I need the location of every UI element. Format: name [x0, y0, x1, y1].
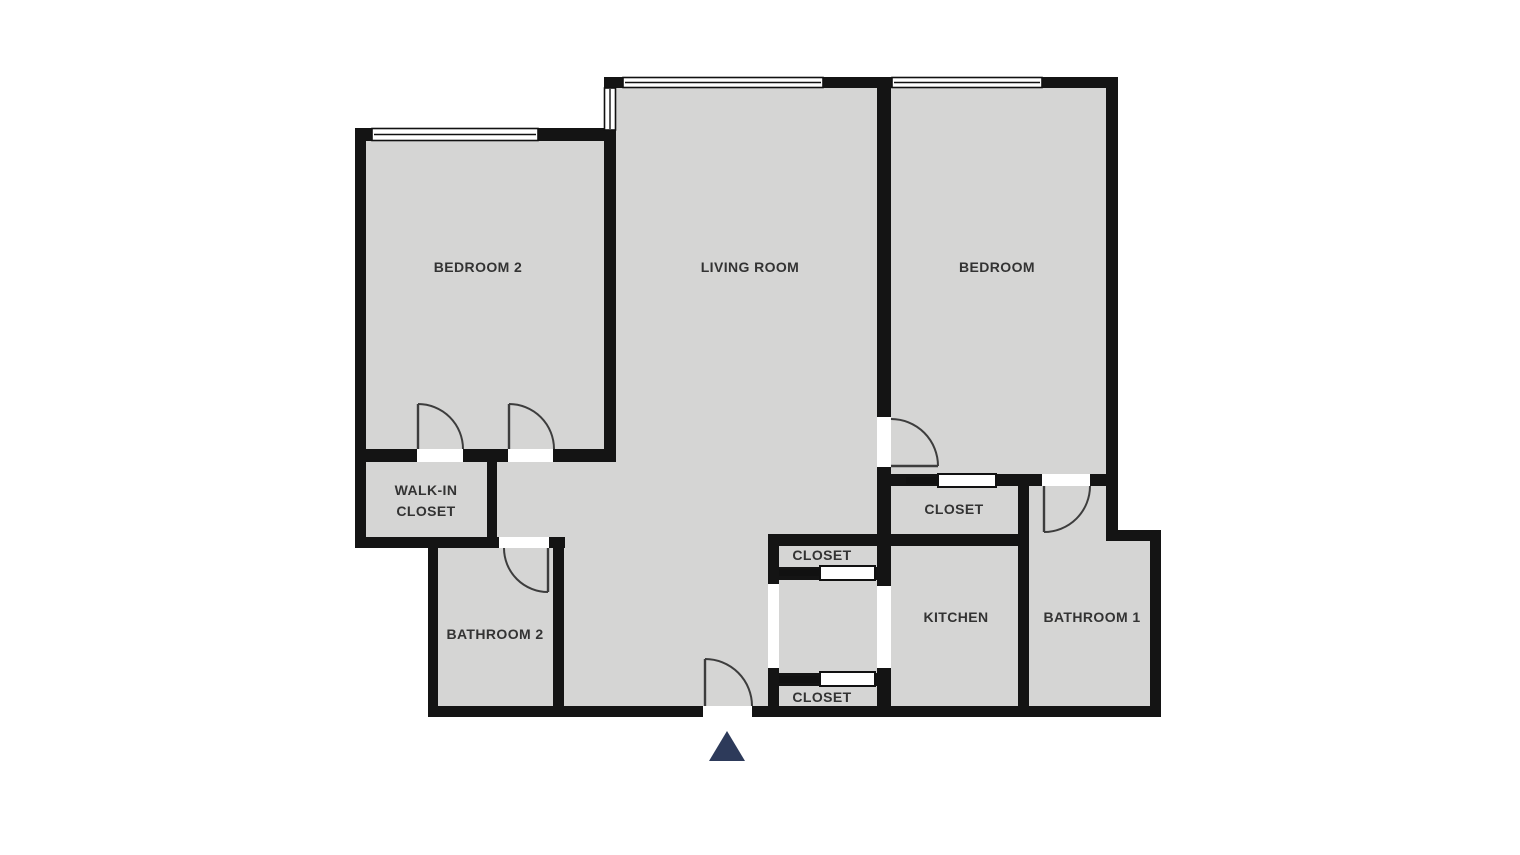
- opening-bedroom2-hall-door: [508, 449, 553, 462]
- wall-closets-top: [768, 534, 1029, 546]
- window-living-room: [623, 78, 823, 88]
- window-living-room-side: [605, 88, 616, 130]
- label-bathroom-1: BATHROOM 1: [1043, 609, 1140, 625]
- opening-entry-door: [703, 706, 752, 717]
- label-bedroom-closet: CLOSET: [924, 501, 983, 517]
- wall-bedroom-right: [1106, 77, 1118, 541]
- wall-walkin-right: [487, 449, 497, 548]
- wall-livingroom-left: [604, 77, 616, 462]
- wall-bottom: [428, 706, 1161, 717]
- wall-outer-right: [1150, 530, 1161, 717]
- label-entry-closet-lower: CLOSET: [792, 689, 851, 705]
- label-entry-closet-upper: CLOSET: [792, 547, 851, 563]
- label-walk-in-closet-line1: WALK-IN: [395, 482, 458, 498]
- label-kitchen: KITCHEN: [923, 609, 988, 625]
- opening-bathroom2-door: [499, 537, 549, 548]
- label-bedroom: BEDROOM: [959, 259, 1035, 275]
- opening-bathroom1-door: [1042, 474, 1090, 486]
- window-bedroom: [892, 78, 1042, 88]
- opening-hall-to-kitchen: [877, 586, 891, 668]
- wall-bathroom2-left: [428, 537, 438, 717]
- label-walk-in-closet-line2: CLOSET: [396, 503, 455, 519]
- opening-bedroom2-closet-door: [417, 449, 463, 462]
- wall-bathroom1-left: [1018, 474, 1029, 717]
- opening-hall-west: [768, 584, 779, 668]
- opening-bedroom-door: [877, 417, 891, 467]
- wall-outer-left: [355, 128, 366, 548]
- wall-bathroom2-right: [553, 537, 564, 717]
- floorplan-svg: BEDROOM 2 LIVING ROOM BEDROOM WALK-IN CL…: [0, 0, 1520, 855]
- floorplan-canvas: BEDROOM 2 LIVING ROOM BEDROOM WALK-IN CL…: [0, 0, 1520, 855]
- floor-area: [355, 77, 1161, 717]
- label-bathroom-2: BATHROOM 2: [446, 626, 543, 642]
- label-bedroom-2: BEDROOM 2: [434, 259, 522, 275]
- label-living-room: LIVING ROOM: [701, 259, 800, 275]
- window-bedroom-2: [372, 129, 538, 141]
- entrance-triangle-icon: [709, 731, 745, 761]
- wall-bedroom2-bottom: [355, 449, 615, 462]
